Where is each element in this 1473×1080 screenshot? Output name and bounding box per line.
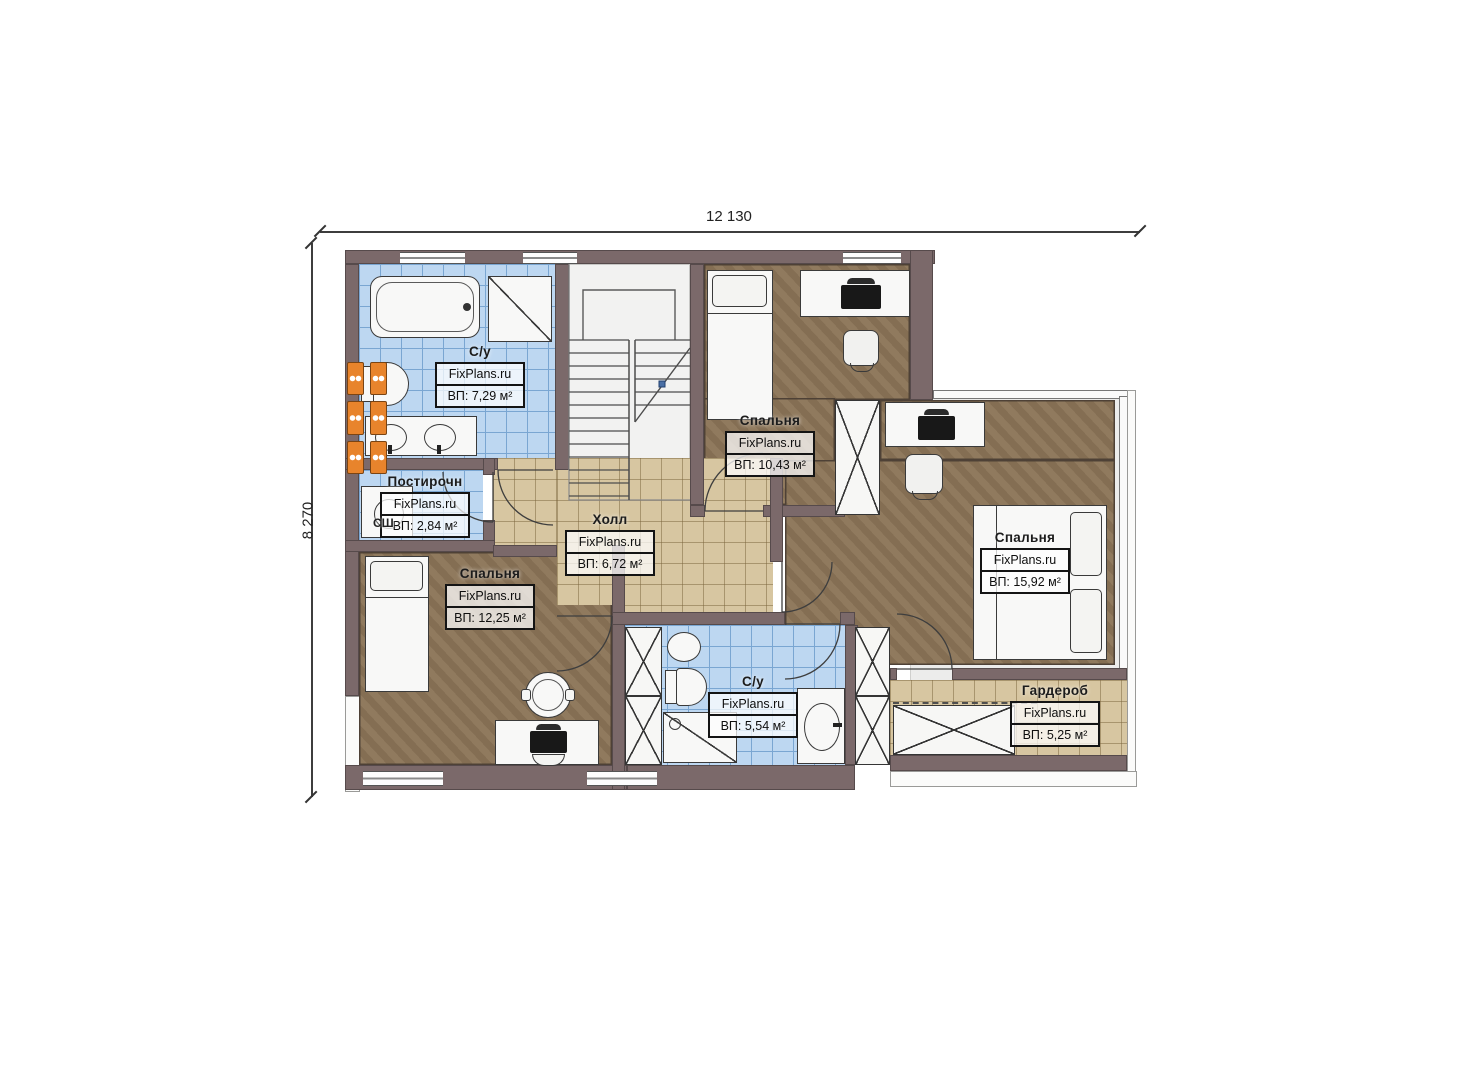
room-name: Гардероб [1022, 683, 1088, 698]
bathtub [370, 276, 480, 338]
sink-tap-left [388, 445, 392, 454]
room-area: ВП: 10,43 м² [727, 453, 813, 475]
radiator-segment [370, 441, 387, 474]
bed-single-left [365, 556, 429, 692]
bidet [667, 632, 701, 662]
wall-stairs-right [690, 264, 704, 505]
room-area: ВП: 5,25 м² [1012, 723, 1098, 745]
room-label-bedroom-right: Спальня FixPlans.ru ВП: 15,92 м² [975, 530, 1075, 594]
laptop [841, 285, 881, 309]
room-info-box: FixPlans.ru ВП: 5,54 м² [708, 692, 798, 738]
room-name: Постирочн [387, 474, 462, 489]
terrace-edge-bottom [890, 771, 1137, 787]
plant-pot-handle [565, 689, 575, 701]
room-name: Спальня [995, 530, 1055, 545]
desk-chair-right-bedroom [905, 454, 943, 494]
window-top-3 [843, 252, 901, 264]
sink-tap-right [437, 445, 441, 454]
room-area: ВП: 12,25 м² [447, 606, 533, 628]
room-name: Спальня [460, 566, 520, 581]
desk-left-bedroom [495, 720, 599, 765]
room-name: С/у [469, 344, 491, 359]
desk-chair-top-bedroom [843, 330, 879, 366]
desk-right-bedroom [885, 402, 985, 447]
room-area: ВП: 15,92 м² [982, 570, 1068, 592]
washbasin-counter [797, 688, 845, 764]
blanket-line [366, 597, 428, 598]
wall-wardrobe-top-b [952, 668, 1127, 680]
dimension-top-line [320, 231, 1140, 233]
room-info-box: FixPlans.ru ВП: 12,25 м² [445, 584, 535, 630]
wall-bath-bottom-top-b [840, 612, 855, 625]
desk-top-bedroom [800, 270, 910, 317]
wall-wardrobe-top-a [890, 668, 897, 680]
wall-laundry-right-a [483, 458, 495, 475]
wall-bedroom-left-top [493, 545, 557, 557]
room-area: ВП: 5,54 м² [710, 714, 796, 736]
closet-hall-bottom-upper [625, 627, 662, 696]
radiator-segment [370, 401, 387, 434]
room-info-box: FixPlans.ru ВП: 6,72 м² [565, 530, 655, 576]
pillow [712, 275, 767, 307]
wardrobe-closet [893, 705, 1015, 755]
room-info-box: FixPlans.ru ВП: 7,29 м² [435, 362, 525, 408]
wall-bedroom-top-bottom-a [690, 505, 705, 517]
brand-watermark: FixPlans.ru [382, 494, 468, 514]
radiator-segment [370, 362, 387, 395]
room-name: Холл [592, 512, 627, 527]
radiator-segment [347, 362, 364, 395]
wall-left [345, 264, 359, 696]
wall-bath-bottom-top-a [612, 612, 785, 625]
plant-pot [525, 672, 571, 718]
brand-watermark: FixPlans.ru [710, 694, 796, 714]
closet-corridor-lower [855, 696, 890, 765]
room-label-bath-bottom: С/у FixPlans.ru ВП: 5,54 м² [703, 674, 803, 738]
pillow [1070, 589, 1102, 653]
room-label-bath-top: С/у FixPlans.ru ВП: 7,29 м² [430, 344, 530, 408]
radiator-segment [347, 401, 364, 434]
room-label-hall: Холл FixPlans.ru ВП: 6,72 м² [560, 512, 660, 576]
dimension-height-label: 8 270 [299, 502, 316, 540]
laptop [918, 416, 955, 440]
wall-bottom-center [627, 765, 855, 790]
dimension-width-label: 12 130 [706, 208, 752, 225]
closet-top-bedroom [835, 400, 880, 515]
room-name: С/у [742, 674, 764, 689]
wall-bedroom-left-right [612, 545, 625, 790]
washbasin [804, 703, 840, 751]
room-area: ВП: 7,29 м² [437, 384, 523, 406]
room-name: Спальня [740, 413, 800, 428]
room-label-bedroom-left: Спальня FixPlans.ru ВП: 12,25 м² [440, 566, 540, 630]
brand-watermark: FixPlans.ru [982, 550, 1068, 570]
shower-cabin-top [488, 276, 552, 342]
window-bottom-2 [587, 771, 657, 786]
brand-watermark: FixPlans.ru [437, 364, 523, 384]
closet-corridor-upper [855, 627, 890, 696]
room-info-box: FixPlans.ru ВП: 15,92 м² [980, 548, 1070, 594]
brand-watermark: FixPlans.ru [1012, 703, 1098, 723]
bed-single-top [707, 270, 773, 420]
terrace-edge-right [1127, 390, 1136, 772]
bathtub-tap [463, 303, 471, 311]
room-area: ВП: 2,84 м² [382, 514, 468, 536]
laptop [530, 731, 567, 753]
brand-watermark: FixPlans.ru [727, 433, 813, 453]
wall-laundry-bottom [345, 540, 495, 552]
window-top-2 [523, 252, 577, 264]
wall-right-main [910, 250, 933, 400]
closet-hall-bottom-lower [625, 696, 662, 765]
room-info-box: FixPlans.ru ВП: 5,25 м² [1010, 701, 1100, 747]
room-label-wardrobe: Гардероб FixPlans.ru ВП: 5,25 м² [1000, 683, 1110, 747]
plant-pot-inner [532, 679, 564, 711]
radiator-segment [347, 441, 364, 474]
washer-annotation: СШ [373, 516, 394, 530]
window-band-top [933, 390, 1129, 399]
room-area: ВП: 6,72 м² [567, 552, 653, 574]
bathtub-inner [376, 282, 474, 332]
room-info-box: FixPlans.ru ВП: 2,84 м² [380, 492, 470, 538]
shower-head [669, 718, 681, 730]
washbasin-tap [833, 723, 842, 727]
chair-tucked [532, 754, 565, 766]
room-label-bedroom-top: Спальня FixPlans.ru ВП: 10,43 м² [720, 413, 820, 477]
blanket-line [708, 313, 772, 314]
floor-plan: С/у FixPlans.ru ВП: 7,29 м² Постирочн Fi… [345, 250, 1135, 790]
plant-pot-handle [521, 689, 531, 701]
room-info-box: FixPlans.ru ВП: 10,43 м² [725, 431, 815, 477]
wall-stairs-left [555, 264, 569, 470]
wall-wing-bottom [890, 755, 1127, 771]
floor-plan-canvas: 12 130 8 270 [0, 0, 1473, 1080]
heated-towel-rail [347, 362, 387, 474]
window-bottom-1 [363, 771, 443, 786]
brand-watermark: FixPlans.ru [567, 532, 653, 552]
window-top-1 [400, 252, 465, 264]
brand-watermark: FixPlans.ru [447, 586, 533, 606]
pillow [370, 561, 423, 591]
